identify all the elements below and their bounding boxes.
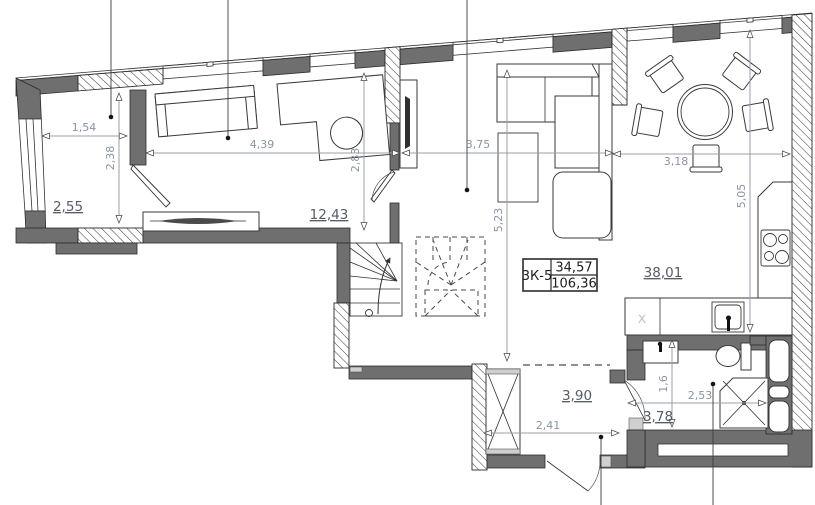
dining-chair — [720, 52, 762, 93]
window — [453, 34, 553, 55]
area-label-living: 38,01 — [644, 265, 683, 281]
wall-pier — [355, 50, 385, 68]
dining-chair — [631, 103, 663, 139]
dining-table — [678, 85, 733, 140]
door-jamb — [601, 456, 611, 467]
kitchen-counter-right — [758, 182, 792, 298]
storage-door — [131, 165, 170, 207]
partition-storage — [130, 90, 146, 165]
dim-storage-height: 2,38 — [104, 93, 119, 223]
svg-text:5,23: 5,23 — [492, 208, 505, 233]
bedroom-desk — [277, 75, 390, 164]
area-label-bathroom: 3,78 — [643, 409, 673, 425]
coffee-table — [498, 133, 538, 202]
window-mullion — [207, 62, 213, 66]
bathroom-door — [624, 380, 645, 420]
window-mullion — [497, 38, 503, 42]
stair-direction-arrow — [378, 258, 390, 314]
shelf — [769, 386, 789, 398]
dim-storage-width: 1,54 — [42, 121, 127, 136]
area-label-storage: 2,55 — [53, 199, 83, 215]
stair-newel — [366, 310, 373, 317]
living-corner-sofa — [497, 64, 612, 240]
unit-area-upper: 34,57 — [555, 261, 592, 276]
boiler — [769, 401, 789, 432]
svg-text:3,75: 3,75 — [466, 138, 491, 151]
toilet — [716, 343, 751, 370]
staircase-dashed-upper — [416, 237, 485, 316]
svg-text:1,6: 1,6 — [657, 375, 670, 393]
hallway-wall-hatched — [472, 364, 487, 470]
dining-chair — [690, 145, 722, 172]
svg-text:2,83: 2,83 — [349, 148, 362, 173]
wall-hatched — [78, 228, 143, 243]
svg-text:2,38: 2,38 — [104, 146, 117, 171]
unit-code: 3К-5 — [522, 269, 552, 284]
bedroom-door — [371, 170, 395, 202]
unit-tag: 3К-5 34,57 106,36 — [522, 259, 597, 292]
door-jamb — [629, 418, 643, 430]
dresser — [143, 212, 259, 231]
partition-pier-hatched — [385, 47, 400, 123]
window-mullion — [747, 18, 753, 22]
left-wall — [16, 78, 46, 243]
wall-hatched — [334, 303, 349, 368]
tv — [405, 96, 410, 149]
wardrobe — [486, 369, 520, 454]
svg-text:2,53: 2,53 — [688, 389, 713, 402]
bedroom-sofa — [155, 85, 257, 136]
partition-pier-hatched — [612, 28, 627, 105]
area-label-bedroom: 12,43 — [310, 207, 349, 223]
svg-text:3,18: 3,18 — [664, 155, 689, 168]
dining-chair — [645, 55, 687, 95]
staircase-solid — [350, 243, 402, 317]
tv-unit — [400, 80, 417, 168]
kitchen-counter-bottom: х — [625, 298, 792, 335]
threshold — [350, 367, 362, 372]
right-wall-hatched — [792, 13, 812, 467]
wall-pier — [400, 45, 453, 65]
floor-plan: х — [0, 0, 815, 505]
unit-area-lower: 106,36 — [551, 277, 597, 292]
svg-text:4,39: 4,39 — [250, 138, 275, 151]
window — [163, 58, 263, 79]
dining-chair — [741, 98, 773, 134]
appliance-x-marker: х — [638, 309, 647, 327]
washing-machine — [769, 340, 789, 382]
window — [19, 119, 45, 211]
window — [627, 24, 673, 41]
floor-plan-page: х — [0, 0, 815, 505]
svg-text:2,41: 2,41 — [536, 419, 561, 432]
svg-text:1,54: 1,54 — [72, 121, 97, 134]
area-label-hallway: 3,90 — [562, 388, 592, 404]
bottom-walls — [16, 228, 812, 470]
svg-text:5,05: 5,05 — [735, 184, 748, 209]
entrance-door — [547, 461, 600, 491]
wall-niche — [658, 444, 788, 456]
bathroom-sink — [643, 341, 678, 363]
window — [310, 50, 355, 67]
wall-pier — [553, 32, 612, 52]
